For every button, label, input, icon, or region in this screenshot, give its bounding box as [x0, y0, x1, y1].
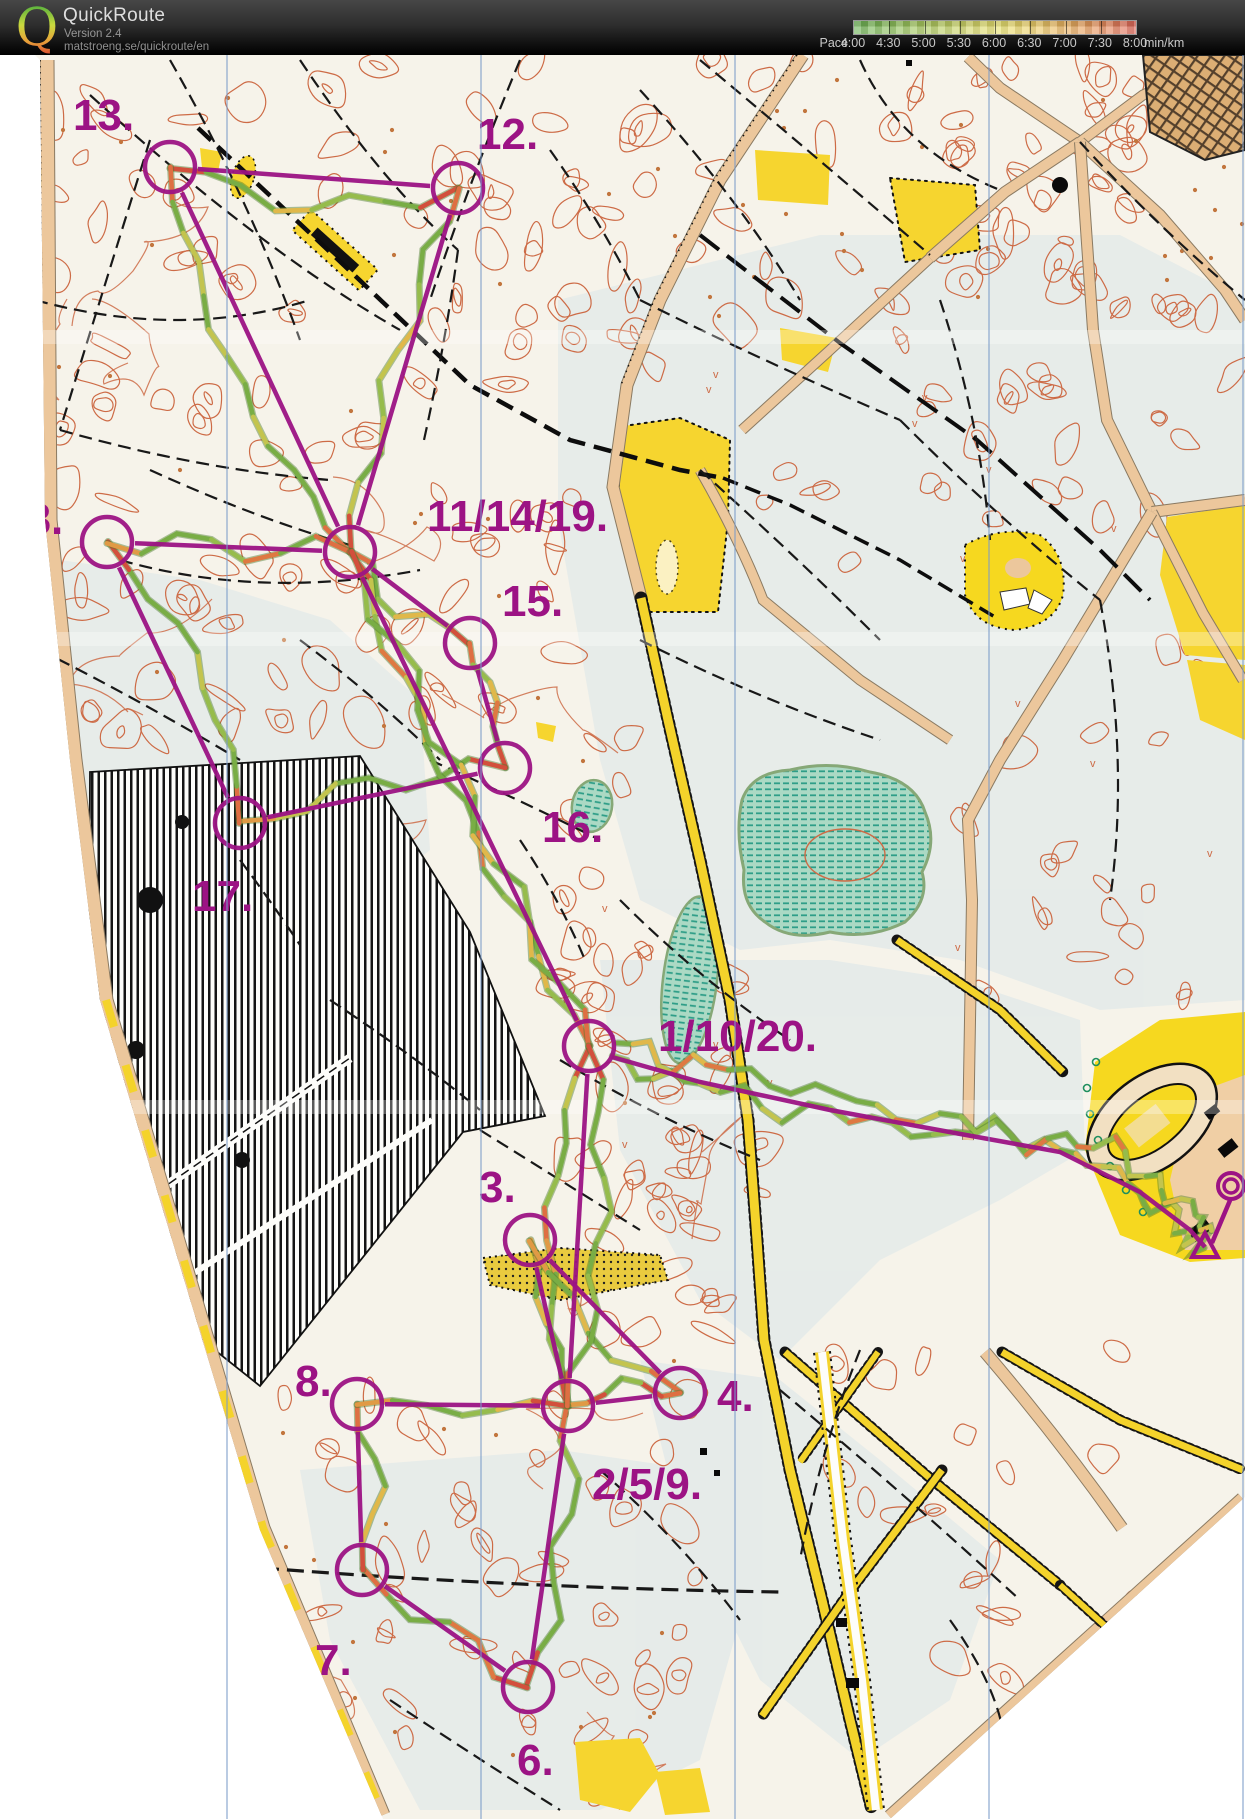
svg-text:v: v [602, 903, 608, 915]
pace-tick-mark [1101, 21, 1102, 34]
pace-tick-mark [889, 21, 890, 34]
svg-text:v: v [1015, 698, 1021, 710]
svg-text:v: v [706, 384, 712, 396]
control-label-6: 6. [517, 1736, 554, 1785]
quickroute-window: vvvvvvvvvvvvvvvv13.12.18.11/14/19.15.16.… [0, 0, 1245, 1819]
title-bar: Q QuickRoute Version 2.4 matstroeng.se/q… [0, 0, 1245, 55]
map-canvas[interactable]: vvvvvvvvvvvvvvvv13.12.18.11/14/19.15.16.… [0, 0, 1245, 1819]
pace-tick-mark [960, 21, 961, 34]
control-label-13: 13. [73, 91, 134, 140]
svg-text:v: v [912, 418, 918, 430]
control-label-2/5/9: 2/5/9. [592, 1460, 702, 1509]
course-leg [385, 1404, 540, 1405]
control-label-15: 15. [502, 577, 563, 626]
pace-tick-mark [1066, 21, 1067, 34]
svg-text:v: v [1207, 848, 1213, 860]
pace-tick-labels: 4:004:305:005:306:006:307:007:308:00 [0, 36, 1245, 52]
control-label-11/14/19: 11/14/19. [427, 492, 608, 541]
pace-tick-mark [995, 21, 996, 34]
control-label-3: 3. [479, 1163, 516, 1212]
control-label-1/10/20: 1/10/20. [658, 1012, 817, 1061]
svg-text:v: v [1090, 758, 1096, 770]
control-label-16: 16. [542, 803, 603, 852]
svg-text:v: v [955, 942, 961, 954]
pace-tick-mark [925, 21, 926, 34]
pace-unit-label: min/km [1144, 36, 1184, 50]
svg-text:v: v [622, 1139, 628, 1151]
control-label-8: 8. [295, 1357, 332, 1406]
app-title: QuickRoute [63, 5, 165, 27]
svg-text:v: v [713, 369, 719, 381]
pace-color-scale [853, 20, 1137, 35]
control-label-17: 17. [192, 872, 253, 921]
control-label-12: 12. [477, 110, 538, 159]
svg-text:v: v [1111, 523, 1117, 535]
pace-tick-mark [1030, 21, 1031, 34]
